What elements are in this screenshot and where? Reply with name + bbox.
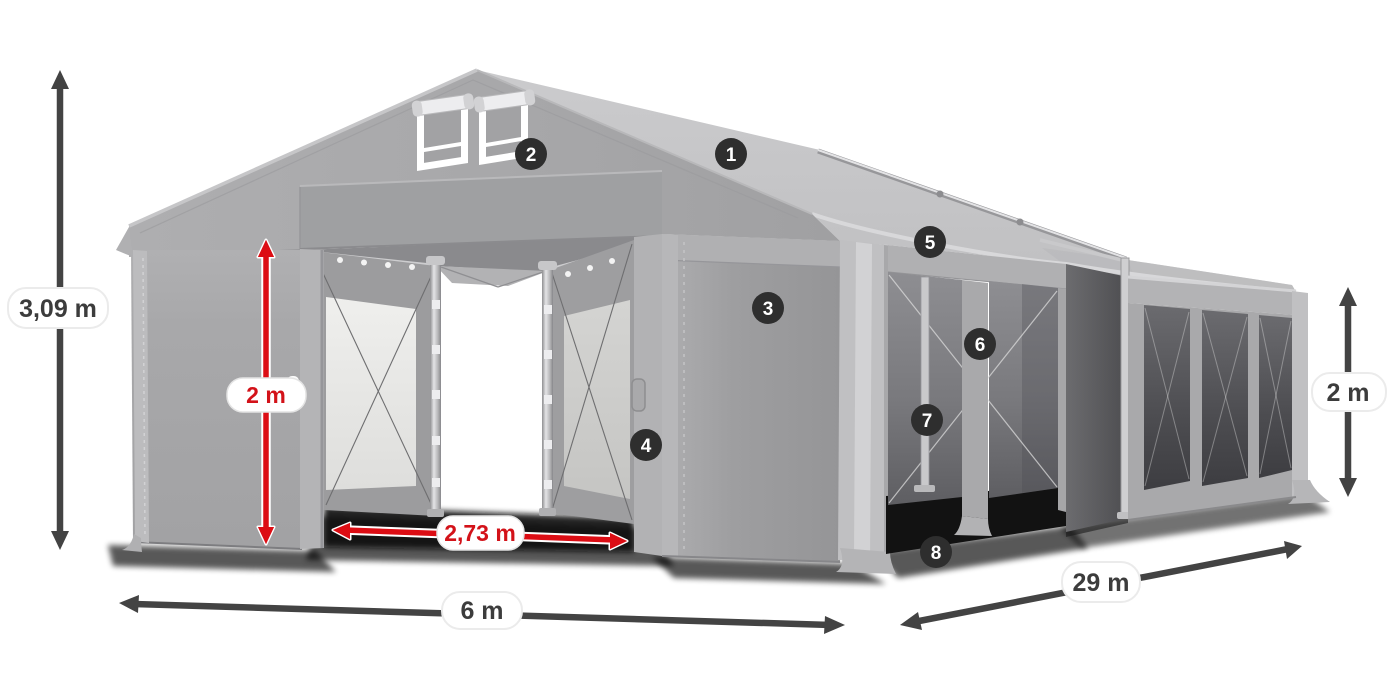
svg-text:3: 3 xyxy=(763,299,774,320)
svg-text:7: 7 xyxy=(922,411,933,432)
svg-text:4: 4 xyxy=(641,436,652,457)
svg-text:2 m: 2 m xyxy=(246,382,286,408)
svg-text:5: 5 xyxy=(925,233,936,254)
svg-text:3,09 m: 3,09 m xyxy=(19,295,97,323)
svg-text:29 m: 29 m xyxy=(1073,569,1130,597)
svg-text:2 m: 2 m xyxy=(1326,379,1369,407)
svg-text:8: 8 xyxy=(931,543,942,564)
svg-text:6: 6 xyxy=(975,335,986,356)
svg-text:2: 2 xyxy=(526,145,537,166)
svg-text:6 m: 6 m xyxy=(460,597,503,625)
svg-text:2,73 m: 2,73 m xyxy=(444,520,516,546)
svg-text:1: 1 xyxy=(726,145,737,166)
